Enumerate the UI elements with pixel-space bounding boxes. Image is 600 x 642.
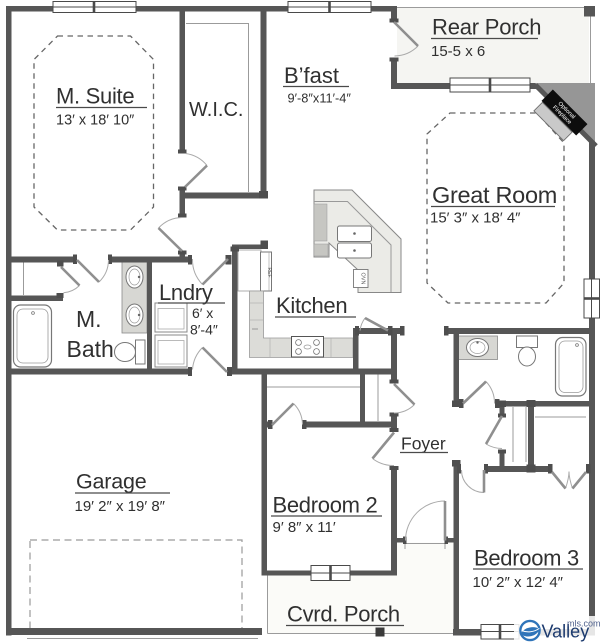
svg-text:Garage: Garage [76, 470, 147, 494]
svg-text:Great Room: Great Room [432, 182, 557, 208]
svg-text:13′ x 18′ 10″: 13′ x 18′ 10″ [56, 113, 134, 129]
svg-text:B’fast: B’fast [284, 63, 339, 88]
svg-text:15′ 3″ x 18′ 4″: 15′ 3″ x 18′ 4″ [430, 210, 521, 227]
svg-text:Cvrd. Porch: Cvrd. Porch [287, 602, 400, 627]
svg-text:Bedroom 3: Bedroom 3 [474, 546, 579, 571]
svg-text:8′-4″: 8′-4″ [190, 322, 218, 338]
svg-text:M.: M. [76, 306, 102, 332]
svg-text:OVN: OVN [360, 273, 366, 285]
svg-text:M. Suite: M. Suite [56, 84, 134, 109]
svg-text:Bedroom 2: Bedroom 2 [273, 493, 378, 518]
svg-text:Foyer: Foyer [401, 434, 446, 454]
svg-text:REF: REF [266, 268, 272, 278]
svg-text:mls.com: mls.com [567, 619, 600, 629]
svg-text:15-5 x 6: 15-5 x 6 [431, 43, 485, 60]
svg-text:Lndry: Lndry [159, 280, 213, 305]
svg-text:Bath: Bath [67, 336, 114, 362]
svg-text:Rear Porch: Rear Porch [432, 15, 541, 40]
svg-text:19′ 2″ x 19′ 8″: 19′ 2″ x 19′ 8″ [75, 498, 166, 515]
svg-text:9′-8″x11′-4″: 9′-8″x11′-4″ [288, 91, 352, 106]
svg-text:W.I.C.: W.I.C. [189, 99, 243, 121]
svg-text:6′ x: 6′ x [192, 305, 213, 321]
svg-text:10′ 2″ x 12′ 4″: 10′ 2″ x 12′ 4″ [473, 574, 564, 591]
svg-text:9′ 8″ x 11′: 9′ 8″ x 11′ [273, 519, 336, 536]
svg-text:Kitchen: Kitchen [276, 293, 347, 318]
